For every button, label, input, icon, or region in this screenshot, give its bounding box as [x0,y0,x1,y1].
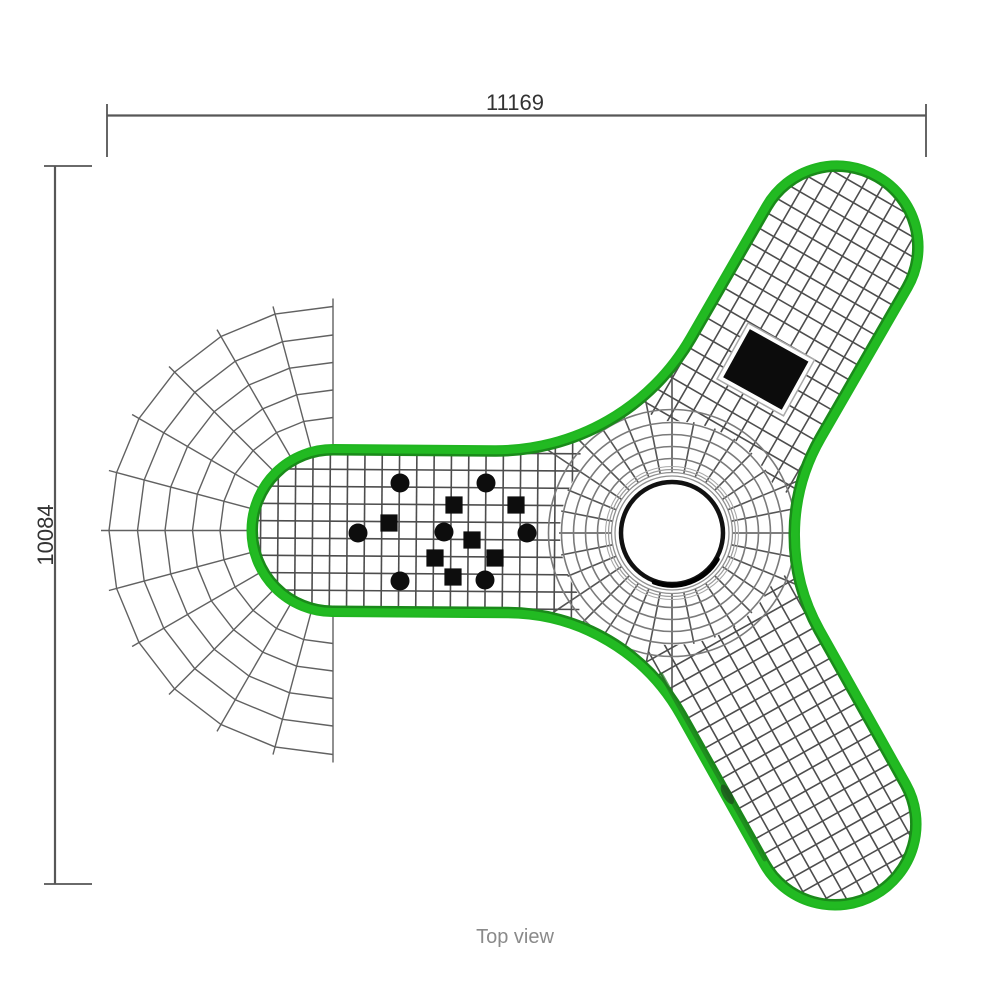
svg-text:11169: 11169 [486,90,544,115]
svg-text:Top view: Top view [476,926,554,948]
svg-text:10084: 10084 [33,504,58,565]
